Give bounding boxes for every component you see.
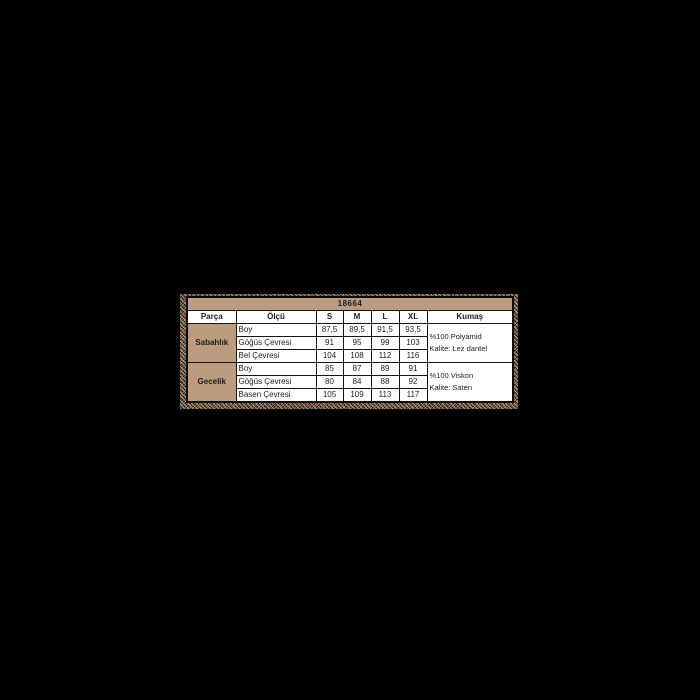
measure-label: Boy	[236, 324, 316, 337]
fabric-info-gecelik: %100 Viskon Kalite: Saten	[427, 363, 513, 403]
col-header-parca: Parça	[187, 311, 236, 324]
measure-value: 109	[343, 389, 371, 403]
measure-value: 112	[371, 350, 399, 363]
size-chart-table: 18664 Parça Ölçü S M L XL Kumaş Sabahlık…	[186, 296, 514, 403]
fabric-line: %100 Viskon	[430, 372, 511, 381]
measure-value: 117	[399, 389, 427, 403]
measure-label: Göğüs Çevresi	[236, 376, 316, 389]
table-row: Sabahlık Boy 87,5 89,5 91,5 93,5 %100 Po…	[187, 324, 513, 337]
product-code: 18664	[187, 297, 513, 311]
measure-value: 87	[343, 363, 371, 376]
measure-value: 88	[371, 376, 399, 389]
measure-value: 87,5	[316, 324, 343, 337]
measure-value: 103	[399, 337, 427, 350]
col-header-olcu: Ölçü	[236, 311, 316, 324]
fabric-line: Kalite: Lez dantel	[430, 345, 511, 354]
group-label-gecelik: Gecelik	[187, 363, 236, 403]
measure-label: Bel Çevresi	[236, 350, 316, 363]
measure-value: 89,5	[343, 324, 371, 337]
fabric-line: %100 Polyamid	[430, 333, 511, 342]
measure-value: 80	[316, 376, 343, 389]
measure-value: 84	[343, 376, 371, 389]
measure-value: 85	[316, 363, 343, 376]
measure-value: 105	[316, 389, 343, 403]
col-header-l: L	[371, 311, 399, 324]
group-label-sabahlik: Sabahlık	[187, 324, 236, 363]
col-header-kumas: Kumaş	[427, 311, 513, 324]
measure-value: 95	[343, 337, 371, 350]
measure-label: Göğüs Çevresi	[236, 337, 316, 350]
measure-value: 108	[343, 350, 371, 363]
table-row: Gecelik Boy 85 87 89 91 %100 Viskon Kali…	[187, 363, 513, 376]
measure-value: 99	[371, 337, 399, 350]
measure-value: 89	[371, 363, 399, 376]
measure-value: 104	[316, 350, 343, 363]
size-chart-panel: 18664 Parça Ölçü S M L XL Kumaş Sabahlık…	[180, 294, 518, 409]
measure-value: 91	[399, 363, 427, 376]
col-header-m: M	[343, 311, 371, 324]
measure-label: Boy	[236, 363, 316, 376]
measure-value: 92	[399, 376, 427, 389]
col-header-s: S	[316, 311, 343, 324]
measure-label: Basen Çevresi	[236, 389, 316, 403]
column-header-row: Parça Ölçü S M L XL Kumaş	[187, 311, 513, 324]
table-title-row: 18664	[187, 297, 513, 311]
fabric-line: Kalite: Saten	[430, 384, 511, 393]
measure-value: 113	[371, 389, 399, 403]
measure-value: 116	[399, 350, 427, 363]
measure-value: 91	[316, 337, 343, 350]
measure-value: 93,5	[399, 324, 427, 337]
measure-value: 91,5	[371, 324, 399, 337]
fabric-info-sabahlik: %100 Polyamid Kalite: Lez dantel	[427, 324, 513, 363]
col-header-xl: XL	[399, 311, 427, 324]
